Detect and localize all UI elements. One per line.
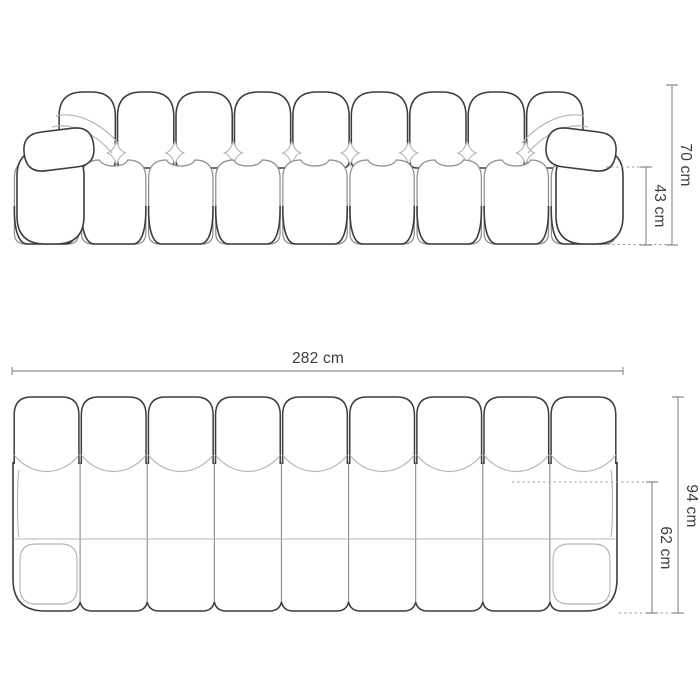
front-view: 70 cm 43 cm (14, 85, 694, 245)
top-view: 282 cm 94 cm 62 cm (12, 350, 700, 613)
sofa-dimension-diagram-page: 70 cm 43 cm 282 cm 94 cm 62 cm (0, 0, 700, 700)
sofa-dimension-diagram: 70 cm 43 cm 282 cm 94 cm 62 cm (0, 0, 700, 700)
dim-label-seat-depth: 62 cm (657, 526, 674, 569)
dim-line-overall-depth (672, 397, 684, 613)
dim-line-overall-width (12, 367, 623, 375)
dim-label-overall-width: 282 cm (292, 350, 344, 367)
top-view-sofa (13, 397, 617, 611)
dim-line-seat-depth (646, 482, 658, 613)
top-view-dimensions: 282 cm 94 cm 62 cm (12, 350, 700, 613)
dim-label-seat-height: 43 cm (651, 184, 668, 227)
dim-label-overall-height: 70 cm (677, 143, 694, 186)
dim-line-seat-height (640, 167, 652, 245)
dim-label-overall-depth: 94 cm (683, 484, 700, 527)
front-view-sofa (14, 92, 623, 244)
